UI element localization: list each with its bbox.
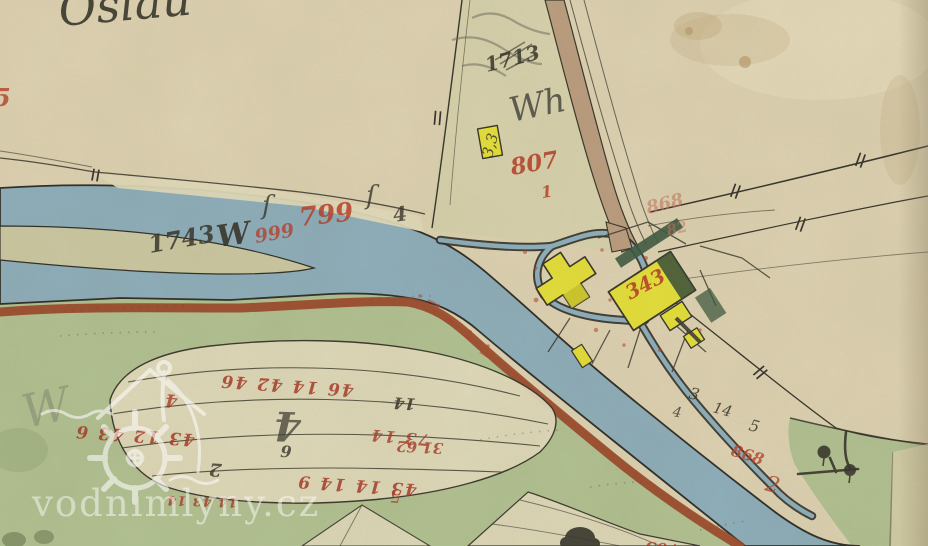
map-canvas[interactable]: Oslau 5 1743 W 999 799 4 ſ ſ 1713 Wh 3,3…	[0, 0, 928, 546]
paper-grain	[0, 0, 928, 546]
cadastral-map-image: Oslau 5 1743 W 999 799 4 ſ ſ 1713 Wh 3,3…	[0, 0, 928, 546]
